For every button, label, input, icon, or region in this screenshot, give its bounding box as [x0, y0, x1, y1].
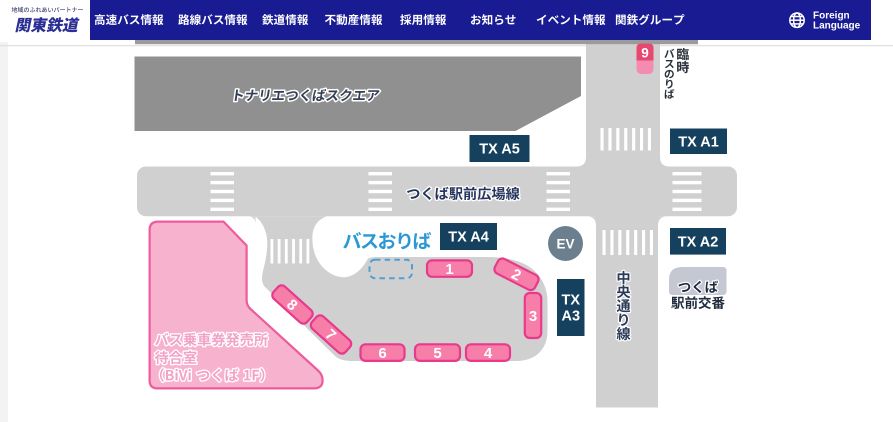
- svg-text:Language: Language: [813, 21, 861, 32]
- svg-text:9: 9: [641, 46, 649, 61]
- svg-text:4: 4: [484, 345, 493, 362]
- svg-text:TX A4: TX A4: [448, 230, 489, 246]
- svg-text:TX: TX: [561, 293, 580, 309]
- svg-text:TX A1: TX A1: [678, 135, 719, 151]
- svg-text:3: 3: [529, 308, 537, 325]
- svg-text:EV: EV: [556, 237, 574, 252]
- svg-text:6: 6: [378, 345, 386, 362]
- svg-text:A3: A3: [561, 309, 580, 325]
- svg-text:TX A2: TX A2: [678, 235, 719, 251]
- svg-text:TX A5: TX A5: [479, 142, 520, 158]
- svg-text:1: 1: [445, 261, 453, 278]
- svg-text:5: 5: [433, 345, 441, 362]
